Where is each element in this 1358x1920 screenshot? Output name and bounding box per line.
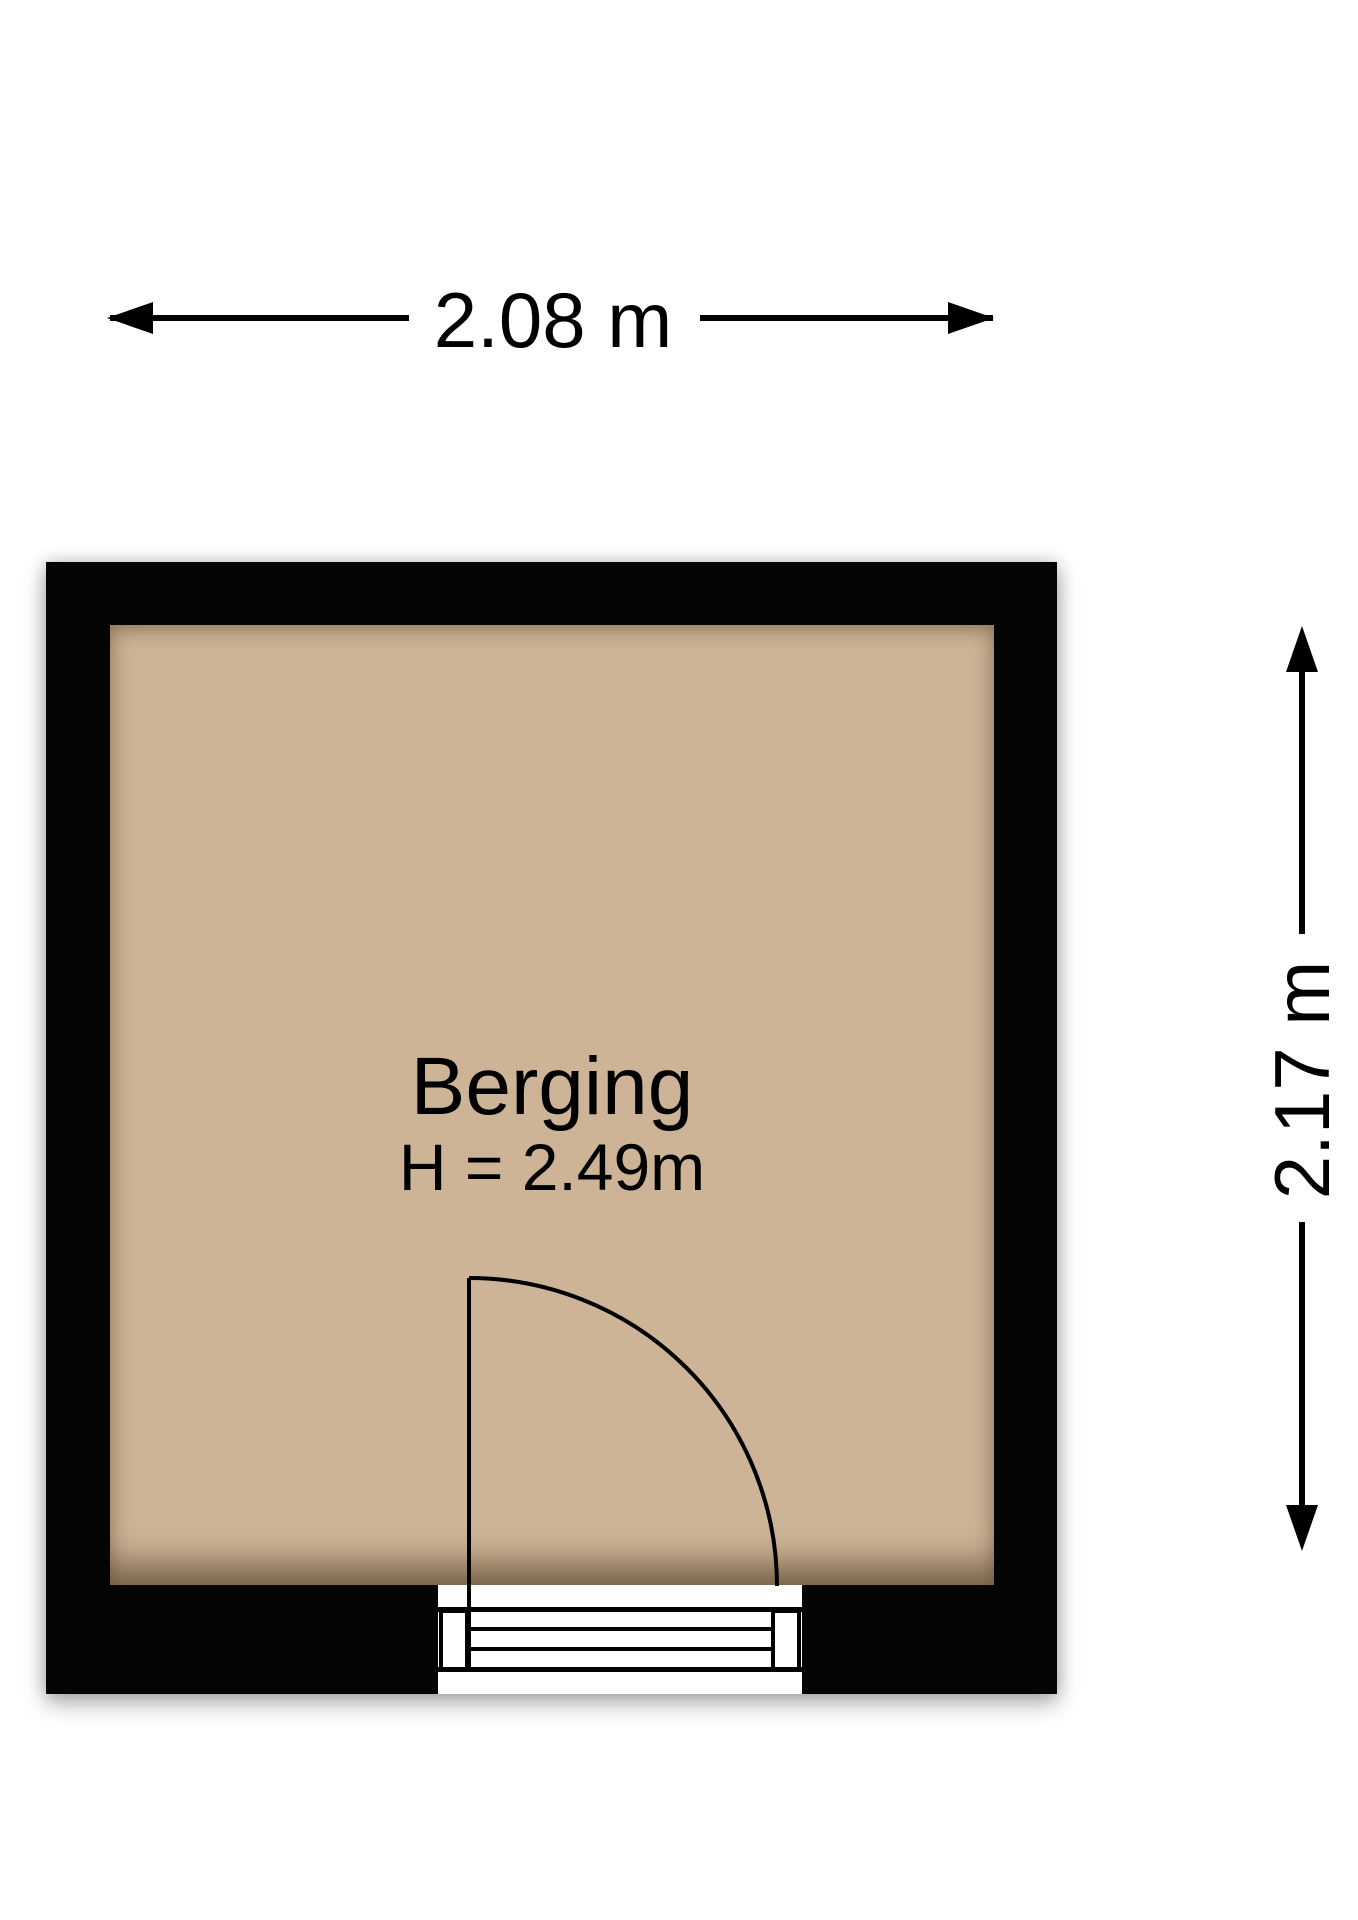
room-height-label: H = 2.49m [152,1134,952,1200]
width-dimension-label: 2.08 m [434,281,672,359]
arrowhead-up-icon [1286,626,1318,672]
depth-dimension-line-top [1299,668,1305,934]
threshold-line [466,1647,774,1651]
threshold-line [438,1667,802,1672]
room-name-label: Berging [152,1046,952,1128]
door-jamb-right [771,1609,801,1671]
threshold-line [438,1607,802,1612]
room-label-block: Berging H = 2.49m [152,1046,952,1200]
door-threshold [438,1585,802,1694]
depth-dimension-label: 2.17 m [1263,961,1341,1199]
arrowhead-left-icon [107,302,153,334]
threshold-line [466,1627,774,1631]
depth-dimension-line-bottom [1299,1222,1305,1506]
arrowhead-right-icon [948,302,994,334]
width-dimension-line-left [110,315,409,321]
floor-plan-canvas: 2.08 m Berging H = 2.49m 2.17 m [0,0,1358,1920]
arrowhead-down-icon [1286,1505,1318,1551]
door-jamb-left [439,1609,469,1671]
